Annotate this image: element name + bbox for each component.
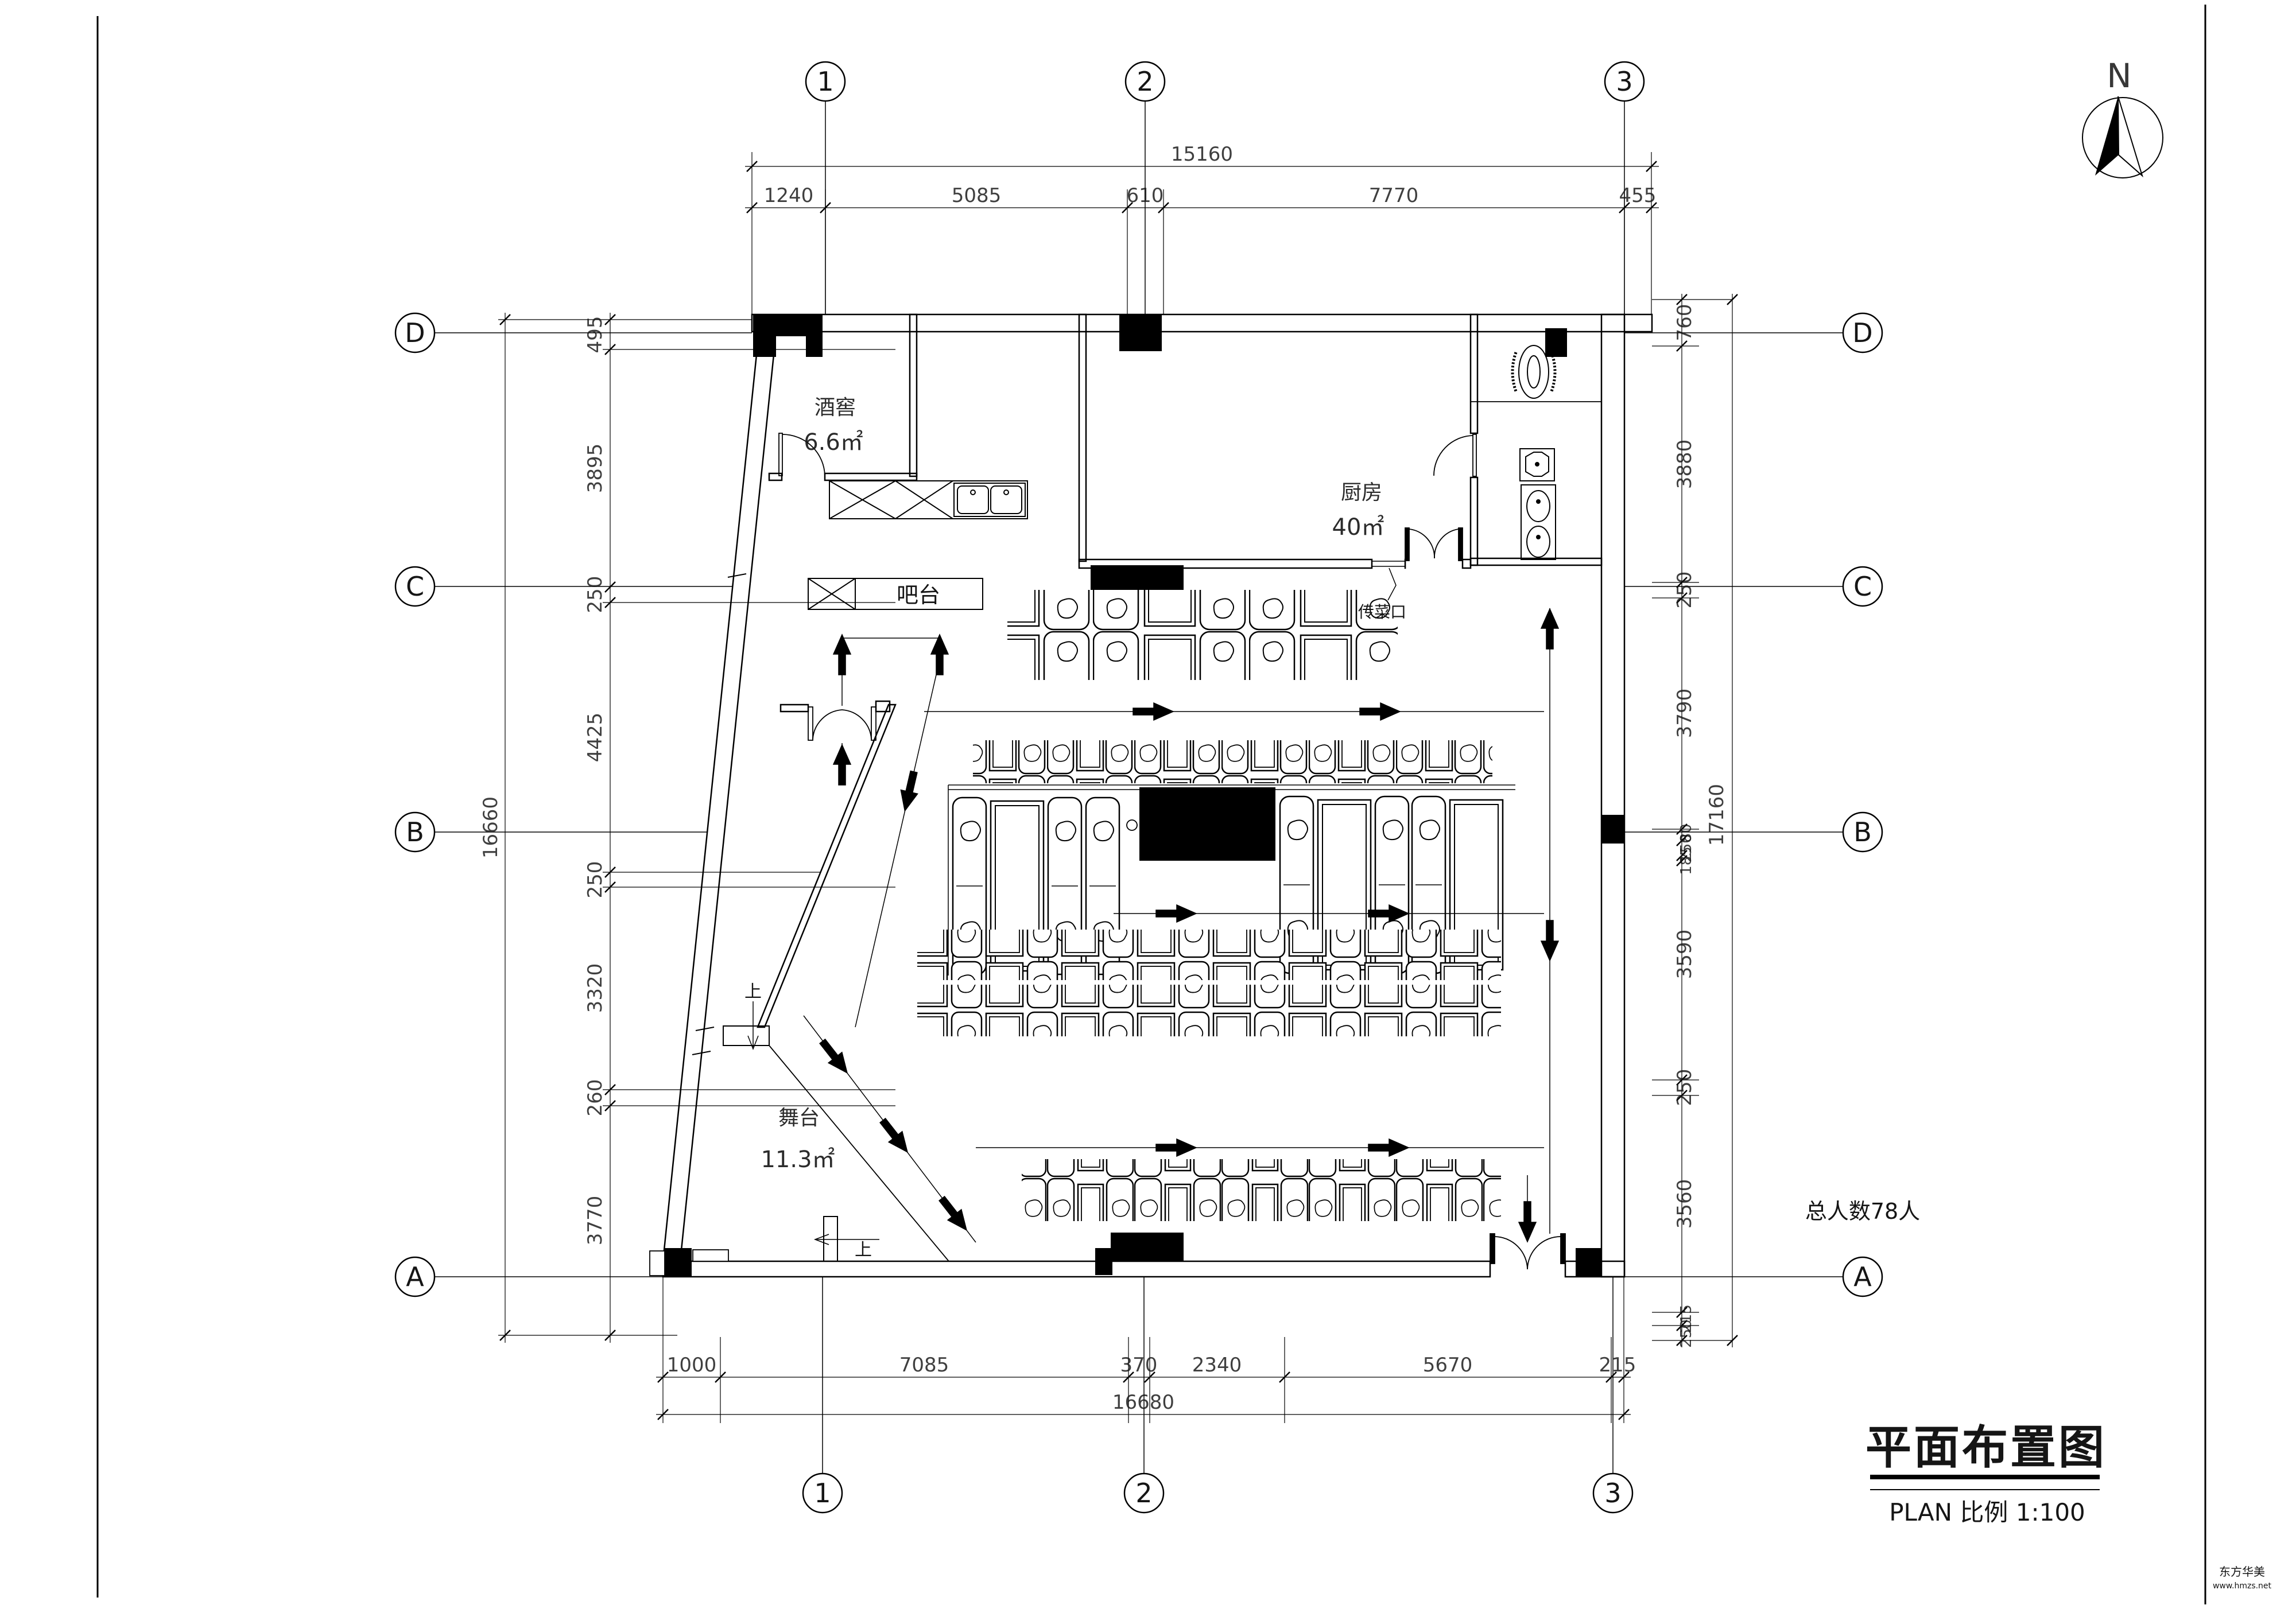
dim-bottom-seg: 2340 bbox=[1192, 1354, 1242, 1377]
watermark-url: www.hmzs.net bbox=[2213, 1581, 2272, 1591]
dim-right-seg: 3560 bbox=[1673, 1179, 1696, 1229]
sheet-title: 平面布置图 bbox=[1865, 1421, 2107, 1474]
grid-row-B: B bbox=[406, 817, 424, 848]
dim-right-seg: 760 bbox=[1673, 304, 1696, 341]
grid-col-2: 2 bbox=[1137, 66, 1153, 97]
dim-bottom-seg: 5670 bbox=[1423, 1354, 1473, 1377]
dim-left-seg: 495 bbox=[584, 316, 607, 353]
kitchen-double-door bbox=[1405, 528, 1463, 561]
capacity-note: 总人数78人 bbox=[1805, 1199, 1920, 1224]
grid-col-1-bottom: 1 bbox=[814, 1478, 831, 1509]
dim-right-seg: 185 bbox=[1678, 846, 1695, 875]
column-2A-bar bbox=[1111, 1233, 1184, 1261]
column-1A bbox=[665, 1248, 692, 1277]
grid-col-3-bottom: 3 bbox=[1604, 1478, 1621, 1509]
dim-top-total: 15160 bbox=[1171, 143, 1233, 166]
dim-left-seg: 3770 bbox=[584, 1196, 607, 1246]
stage-backdrop-block bbox=[1139, 787, 1275, 861]
watermark-brand: 东方华美 bbox=[2219, 1565, 2265, 1579]
booth-partition-block bbox=[1091, 565, 1184, 590]
grid-row-D-right: D bbox=[1852, 317, 1872, 348]
dim-top-seg: 5085 bbox=[952, 184, 1002, 207]
title-block: 平面布置图 PLAN 比例 1:100 bbox=[1865, 1421, 2107, 1526]
dim-left-seg: 3895 bbox=[584, 444, 607, 493]
dim-top-seg: 455 bbox=[1619, 184, 1657, 207]
dim-right-total: 17160 bbox=[1705, 784, 1728, 846]
toilet-door bbox=[1434, 434, 1476, 476]
dim-right-seg: 3790 bbox=[1673, 689, 1696, 739]
dim-bottom-seg: 215 bbox=[1599, 1354, 1636, 1377]
dim-bottom-seg: 1000 bbox=[667, 1354, 717, 1377]
watermark: 东方华美 www.hmzs.net bbox=[2213, 1565, 2272, 1591]
grid-col-2-bottom: 2 bbox=[1135, 1478, 1152, 1509]
column-2D bbox=[1119, 314, 1162, 351]
floor-plan-sheet: 1 2 3 1 2 3 D C B A D C B A bbox=[0, 0, 2296, 1607]
dim-left-total: 16660 bbox=[479, 796, 502, 858]
room-winecellar-name: 酒窖 bbox=[815, 396, 856, 419]
booth-row-1 bbox=[1007, 590, 1398, 680]
room-stage-area: 11.3㎡ bbox=[761, 1146, 835, 1173]
column-3B bbox=[1601, 815, 1624, 844]
bar-label: 吧台 bbox=[897, 582, 940, 608]
dimensions-top bbox=[745, 152, 1659, 314]
dim-right-seg: 3590 bbox=[1673, 930, 1696, 980]
kitchen-counter bbox=[829, 481, 1027, 519]
up-label-stage: 上 bbox=[744, 982, 762, 1002]
dim-bottom-total: 16680 bbox=[1112, 1391, 1174, 1414]
pass-hatch-label: 传菜口 bbox=[1358, 603, 1406, 621]
grid-col-1: 1 bbox=[817, 66, 833, 97]
room-kitchen-area: 40㎡ bbox=[1332, 514, 1384, 541]
up-label-step: 上 bbox=[855, 1240, 872, 1260]
grid-row-D: D bbox=[405, 317, 425, 348]
grid-row-B-right: B bbox=[1853, 817, 1872, 848]
grid-row-A-right: A bbox=[1853, 1261, 1872, 1292]
north-arrow: N bbox=[2082, 56, 2163, 178]
dim-right-seg: 250 bbox=[1678, 1319, 1695, 1348]
column-2A bbox=[1095, 1248, 1112, 1275]
dim-top-seg: 7770 bbox=[1369, 184, 1419, 207]
grid-bubble-labels: 1 2 3 1 2 3 D C B A D C B A bbox=[405, 66, 1872, 1509]
grid-bubbles bbox=[395, 62, 1882, 1513]
dim-right-seg: 250 bbox=[1673, 1069, 1696, 1106]
room-winecellar-area: 6.6㎡ bbox=[804, 429, 863, 456]
dim-left-seg: 250 bbox=[584, 861, 607, 899]
dim-left-seg: 250 bbox=[584, 576, 607, 613]
booth-row-2-upper bbox=[973, 740, 1492, 783]
booth-row-3a bbox=[917, 930, 1501, 980]
dimensions-left bbox=[498, 313, 895, 1343]
column-3D bbox=[1545, 328, 1567, 357]
bar-counter bbox=[808, 578, 983, 609]
dim-right-seg: 3880 bbox=[1673, 440, 1696, 489]
structural-columns bbox=[665, 314, 1624, 1277]
grid-row-C-right: C bbox=[1853, 571, 1872, 602]
dim-left-seg: 3320 bbox=[584, 963, 607, 1013]
column-3A bbox=[1576, 1248, 1601, 1277]
dim-bottom-seg: 370 bbox=[1120, 1354, 1158, 1377]
dim-right-seg: 250 bbox=[1673, 572, 1696, 609]
dim-top-seg: 610 bbox=[1127, 184, 1164, 207]
north-label: N bbox=[2107, 56, 2131, 95]
dim-bottom-seg: 7085 bbox=[899, 1354, 949, 1377]
dim-left-seg: 260 bbox=[584, 1079, 607, 1117]
room-stage-name: 舞台 bbox=[778, 1106, 820, 1130]
dim-left-seg: 4425 bbox=[584, 713, 607, 763]
toilet-basin-square bbox=[1520, 449, 1554, 481]
grid-system bbox=[435, 101, 1843, 1474]
booth-row-3b bbox=[917, 985, 1501, 1036]
grid-col-3: 3 bbox=[1616, 66, 1632, 97]
seating-area bbox=[917, 590, 1515, 1221]
toilet-vanity bbox=[1521, 485, 1556, 559]
room-kitchen-name: 厨房 bbox=[1341, 481, 1382, 504]
booth-row-4 bbox=[1022, 1159, 1501, 1221]
vestibule-double-door bbox=[808, 707, 876, 740]
grid-row-C: C bbox=[406, 571, 424, 602]
sheet-subtitle: PLAN 比例 1:100 bbox=[1889, 1498, 2085, 1526]
dim-top-seg: 1240 bbox=[764, 184, 814, 207]
grid-row-A: A bbox=[406, 1261, 424, 1292]
